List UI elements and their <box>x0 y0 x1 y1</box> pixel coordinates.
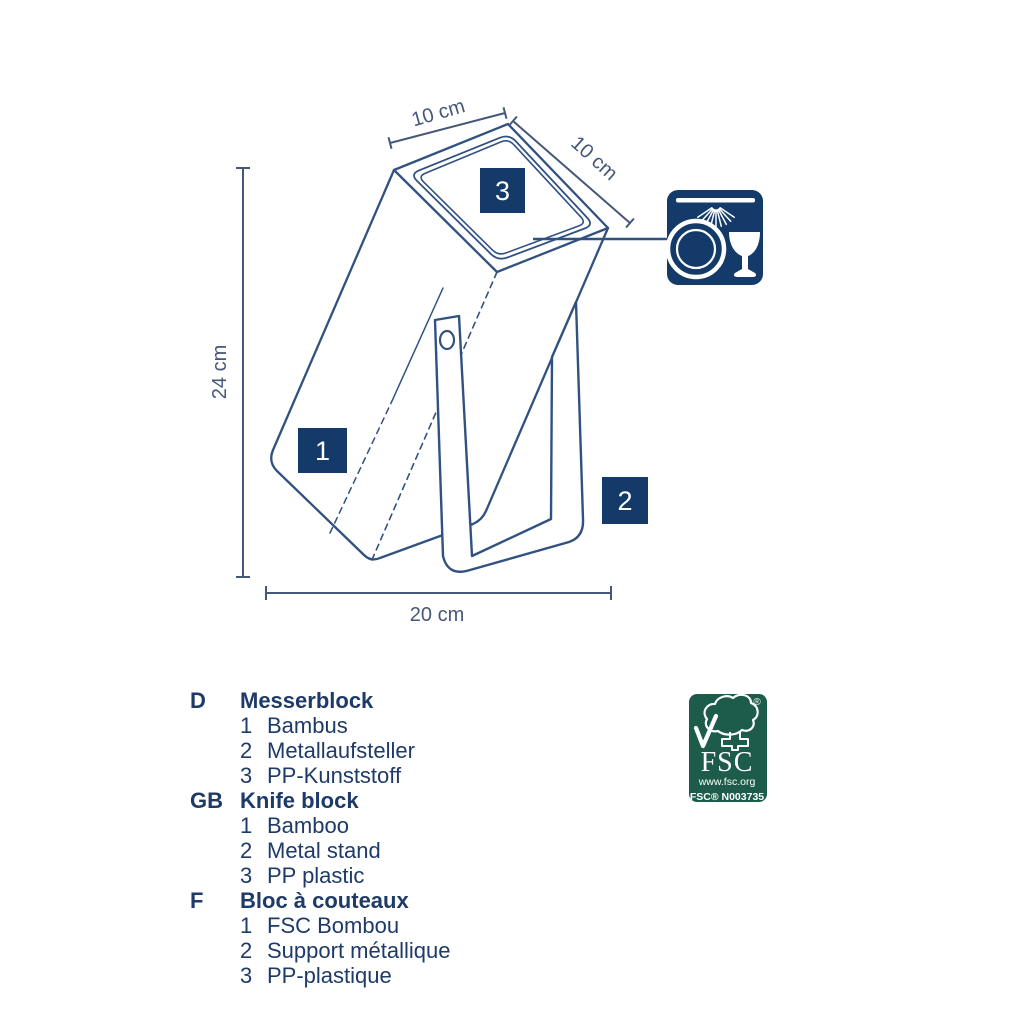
legend-item: 3 PP-plastique <box>190 963 620 988</box>
dim-height-label: 24 cm <box>209 345 231 399</box>
dishwasher-water-bar <box>676 198 755 203</box>
item-number: 2 <box>240 738 267 763</box>
language-code: GB <box>190 788 240 813</box>
legend-section-header: GB Knife block <box>190 788 620 813</box>
legend-item: 2 Support métallique <box>190 938 620 963</box>
item-text: Metal stand <box>267 838 620 863</box>
stand-screw-hole <box>440 331 454 349</box>
dim-height-line <box>236 168 250 577</box>
fsc-reg-mark: ® <box>753 697 761 708</box>
legend-section-header: F Bloc à couteaux <box>190 888 620 913</box>
product-diagram-page: 10 cm 10 cm 24 cm 20 cm 1 2 3 ® FSC www.… <box>0 0 1024 1024</box>
legend: D Messerblock 1 Bambus 2 Metallaufstelle… <box>190 688 620 988</box>
part-label-3: 3 <box>495 176 510 206</box>
product-title: Bloc à couteaux <box>240 888 620 913</box>
dim-top-depth-label: 10 cm <box>566 132 621 185</box>
legend-item: 1 FSC Bombou <box>190 913 620 938</box>
product-title: Messerblock <box>240 688 620 713</box>
item-text: PP plastic <box>267 863 620 888</box>
item-text: Support métallique <box>267 938 620 963</box>
item-text: Bamboo <box>267 813 620 838</box>
item-number: 1 <box>240 813 267 838</box>
fsc-license: FSC® N003735 <box>690 791 764 803</box>
legend-section-header: D Messerblock <box>190 688 620 713</box>
product-title: Knife block <box>240 788 620 813</box>
language-code: D <box>190 688 240 713</box>
item-number: 3 <box>240 963 267 988</box>
legend-item: 3 PP plastic <box>190 863 620 888</box>
legend-item: 1 Bambus <box>190 713 620 738</box>
legend-item: 3 PP-Kunststoff <box>190 763 620 788</box>
item-text: FSC Bombou <box>267 913 620 938</box>
part-label-1: 1 <box>315 436 330 466</box>
legend-item: 2 Metallaufsteller <box>190 738 620 763</box>
item-number: 1 <box>240 713 267 738</box>
dim-base-width-label: 20 cm <box>410 604 464 626</box>
item-number: 1 <box>240 913 267 938</box>
part-label-2: 2 <box>617 486 632 516</box>
item-text: PP-plastique <box>267 963 620 988</box>
item-number: 3 <box>240 763 267 788</box>
item-number: 2 <box>240 938 267 963</box>
legend-item: 1 Bamboo <box>190 813 620 838</box>
dim-base-width-line <box>266 586 611 600</box>
fsc-logo: ® FSC www.fsc.org FSC® N003735 <box>689 694 767 803</box>
item-text: PP-Kunststoff <box>267 763 620 788</box>
legend-item: 2 Metal stand <box>190 838 620 863</box>
item-number: 2 <box>240 838 267 863</box>
language-code: F <box>190 888 240 913</box>
item-text: Metallaufsteller <box>267 738 620 763</box>
item-number: 3 <box>240 863 267 888</box>
dishwasher-safe-icon <box>667 190 763 285</box>
item-text: Bambus <box>267 713 620 738</box>
fsc-acronym: FSC <box>701 747 754 778</box>
fsc-url: www.fsc.org <box>698 776 756 788</box>
